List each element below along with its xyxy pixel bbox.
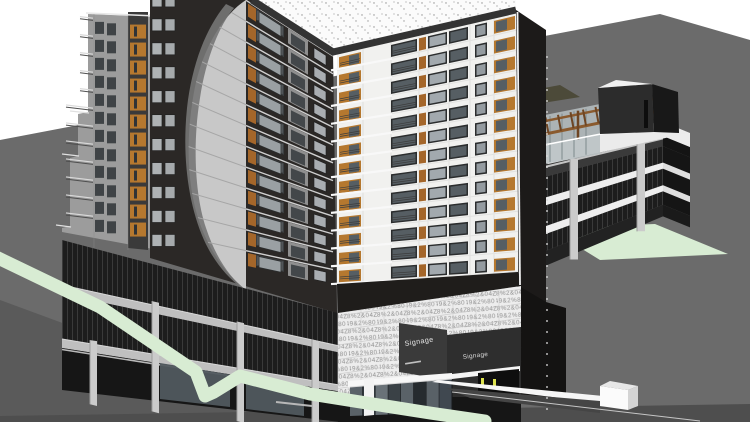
wing-window	[95, 94, 104, 106]
wing-window	[95, 166, 104, 178]
wing-wood-panel	[130, 97, 146, 111]
wing-window	[107, 41, 116, 53]
signage-panel-primary	[399, 323, 447, 380]
window-glass	[430, 226, 446, 237]
wing-window	[107, 95, 116, 107]
wood-divider	[248, 232, 256, 247]
west-window	[152, 234, 162, 246]
window-glass	[430, 245, 446, 256]
panel-window	[496, 119, 507, 131]
west-window	[152, 115, 162, 127]
west-window	[165, 0, 175, 7]
west-window	[152, 139, 162, 151]
architectural-rendering: 8%2&04Z6 Z49&2%80	[0, 0, 750, 422]
wood-strip	[419, 226, 426, 239]
wing-wood-panel	[130, 61, 146, 75]
window-glass	[477, 202, 486, 213]
podium-column	[152, 301, 159, 413]
wing-window	[95, 58, 104, 70]
panel-window	[496, 79, 507, 92]
wood-strip	[419, 169, 426, 182]
panel-window	[496, 199, 507, 211]
wing-window	[107, 221, 116, 233]
west-window	[152, 67, 162, 79]
west-window	[152, 19, 162, 31]
window-glass	[477, 44, 486, 56]
wood-divider	[248, 212, 256, 227]
wing-wood-panel	[130, 205, 146, 219]
wing-wood-slit	[134, 189, 137, 199]
wing-wood-panel	[130, 115, 146, 129]
wing-window	[95, 76, 104, 88]
wood-strip	[419, 75, 426, 89]
panel-window	[496, 139, 507, 151]
wing-wood-panel	[130, 25, 146, 39]
wing-window	[95, 148, 104, 160]
west-window	[165, 163, 175, 175]
wing-wood-panel	[130, 187, 146, 201]
wing-window	[107, 203, 116, 215]
wing-wood-panel	[130, 223, 146, 237]
west-window	[165, 43, 175, 55]
window-glass	[430, 187, 446, 198]
wing-window	[107, 167, 116, 179]
west-window	[165, 115, 175, 127]
wing-window	[107, 185, 116, 197]
panel-window	[496, 219, 507, 231]
window-glass	[477, 64, 486, 76]
west-window	[165, 234, 175, 246]
window-glass	[477, 163, 486, 174]
window-glass	[477, 84, 486, 95]
wood-strip	[419, 56, 426, 70]
window-glass	[430, 207, 446, 218]
stair-core-side	[652, 84, 679, 133]
wing-window	[107, 149, 116, 161]
wing-wood-slit	[134, 117, 137, 127]
panel-window	[496, 259, 507, 270]
wood-divider	[248, 253, 256, 268]
west-window	[152, 187, 162, 199]
wing-window	[95, 112, 104, 124]
west-window	[165, 139, 175, 151]
wing-wood-panel	[130, 169, 146, 183]
wing-window	[95, 40, 104, 52]
west-window	[165, 91, 175, 103]
wing-wood-slit	[134, 45, 137, 55]
wing-wood-panel	[130, 43, 146, 57]
panel-window	[496, 179, 507, 191]
wing-wood-slit	[134, 225, 137, 235]
wing-window	[95, 130, 104, 142]
wood-strip	[419, 264, 426, 277]
west-window	[152, 163, 162, 175]
wing-wood-slit	[134, 99, 137, 109]
wing-window	[107, 131, 116, 143]
ramp-end-block-side	[628, 386, 638, 410]
wing-wood-slit	[134, 27, 137, 37]
panel-window	[496, 239, 507, 250]
wing-wood-slit	[134, 153, 137, 163]
west-window	[152, 43, 162, 55]
west-window	[152, 0, 162, 7]
podium-column	[312, 339, 319, 422]
window-glass	[477, 123, 486, 134]
window-glass	[451, 204, 467, 215]
window-glass	[430, 264, 446, 275]
wood-strip	[419, 150, 426, 163]
wing-wood-slit	[134, 63, 137, 73]
wing-window	[95, 22, 104, 34]
west-window	[152, 91, 162, 103]
west-window	[165, 19, 175, 31]
garage-column	[570, 158, 578, 260]
panel-window	[496, 99, 507, 111]
west-window	[165, 187, 175, 199]
window-glass	[477, 241, 486, 252]
window-glass	[477, 182, 486, 193]
wing-window	[95, 184, 104, 196]
wing-wood-panel	[130, 151, 146, 165]
wing-wood-slit	[134, 207, 137, 217]
wood-strip	[419, 132, 426, 145]
window-glass	[477, 143, 486, 154]
stair-core-door	[644, 100, 648, 128]
wing-window	[107, 113, 116, 125]
west-window	[165, 67, 175, 79]
window-glass	[477, 261, 486, 271]
garage-column	[637, 142, 645, 231]
wood-strip	[419, 94, 426, 108]
ramp-end-block-front	[600, 386, 628, 410]
wing-wood-slit	[134, 135, 137, 145]
west-window	[165, 210, 175, 222]
wood-strip	[419, 37, 426, 51]
wing-window	[95, 202, 104, 214]
window-glass	[451, 243, 467, 254]
wood-strip	[419, 113, 426, 127]
wing-wood-slit	[134, 171, 137, 181]
podium-column	[90, 340, 97, 406]
wing-wood-panel	[130, 79, 146, 93]
wing-window	[107, 23, 116, 35]
window-glass	[477, 103, 486, 114]
wood-strip	[419, 188, 426, 201]
wing-window	[107, 77, 116, 89]
window-glass	[477, 222, 486, 233]
window-glass	[451, 263, 467, 274]
wing-wood-slit	[134, 81, 137, 91]
panel-window	[496, 159, 507, 171]
wood-strip	[419, 207, 426, 220]
wing-wood-panel	[130, 133, 146, 147]
wing-window	[95, 220, 104, 232]
wood-divider	[248, 191, 256, 207]
model-viewport: 8%2&04Z6 Z49&2%80	[0, 0, 750, 422]
west-window	[152, 210, 162, 222]
wing-window	[107, 59, 116, 71]
wood-strip	[419, 245, 426, 258]
tower-front-face	[337, 10, 518, 284]
window-glass	[451, 224, 467, 235]
